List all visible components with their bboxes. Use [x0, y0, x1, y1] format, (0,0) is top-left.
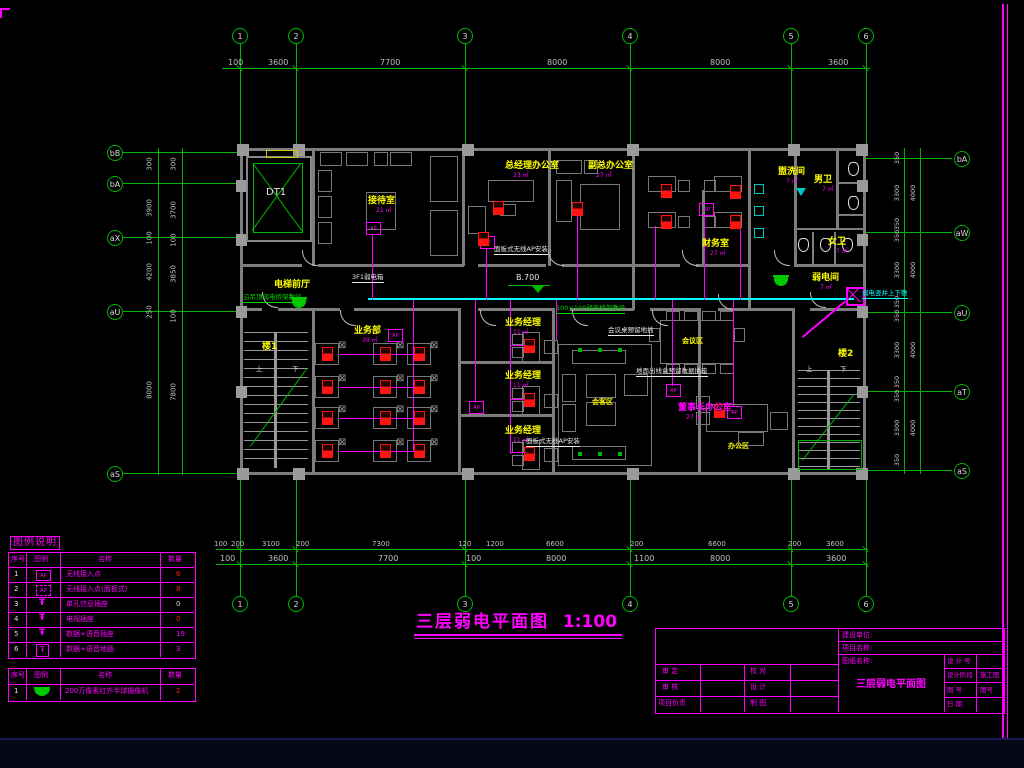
grid-bubble-left: bB [107, 145, 123, 161]
wire [740, 226, 741, 300]
titleblock-right-label: 设 计 号 [947, 658, 971, 665]
annotation: 地面出线盒预留数据插座 [636, 368, 708, 377]
grid-bubble-right: aT [954, 384, 970, 400]
door-arc [774, 250, 790, 266]
workstation-box: ⊠ [396, 341, 404, 351]
annotation: 上 [806, 366, 813, 373]
elevation-triangle-icon [532, 286, 544, 293]
dim-label: 1100 [634, 555, 654, 563]
dim-label: 7300 [372, 541, 390, 548]
workstation-box: ⊠ [396, 405, 404, 415]
data-outlet-icon [414, 411, 425, 425]
legend-ap-icon: AP [36, 585, 51, 596]
furniture [678, 216, 690, 228]
grid-line [866, 477, 867, 596]
grid-bubble-right: aW [954, 225, 970, 241]
wall [794, 148, 797, 266]
furniture [346, 152, 368, 166]
grid-bubble-top: 2 [288, 28, 304, 44]
plant-dot [578, 348, 582, 352]
titleblock-role-label: 审 定 [662, 668, 678, 675]
grid-line [791, 43, 792, 148]
data-outlet-icon [414, 347, 425, 361]
dim-label: 3300 [894, 185, 901, 202]
dim-label: 3600 [268, 555, 288, 563]
plant-dot [598, 348, 602, 352]
wireless-ap-icon: AP [388, 329, 403, 342]
data-outlet-icon [322, 444, 333, 458]
data-outlet-icon [380, 347, 391, 361]
cad-drawing-canvas[interactable]: 三层弱电平面图 1:100 图例说明 112233445566100360077… [0, 0, 1024, 768]
wire [486, 248, 487, 300]
furniture [468, 206, 486, 234]
stair-rail [798, 440, 862, 470]
column [857, 386, 868, 398]
legend2-header: 数量 [168, 672, 182, 679]
furniture [318, 170, 332, 192]
dim-label: 100 [466, 555, 481, 563]
data-outlet-icon [322, 380, 333, 394]
dim-label: 350 [894, 152, 901, 164]
wire [733, 300, 734, 406]
dim-line-bottom-1 [216, 549, 868, 550]
grid-line [866, 470, 952, 471]
legend-row-no: 1 [14, 571, 18, 578]
furniture [562, 374, 576, 402]
room-label: 总经理办公室 [505, 162, 559, 171]
dim-label: 7700 [380, 59, 400, 67]
elevation-label: B.700 [516, 274, 539, 282]
titleblock-field: 项目名称: [842, 645, 872, 652]
stair-stringer [274, 332, 277, 468]
dim-label: 250 [147, 305, 154, 318]
column [293, 468, 305, 480]
legend-header: 图例 [34, 556, 48, 563]
titleblock-right-value: 图号 [980, 687, 993, 694]
legend-floor-outlet-icon: Ŧ [36, 644, 49, 657]
dim-label: 3300 [894, 420, 901, 437]
room-area-label: 39 ㎡ [362, 338, 378, 344]
wall [794, 264, 866, 267]
legend-outlet-icon: Ŧ [39, 599, 45, 608]
grid-line [866, 391, 952, 392]
data-outlet-icon [524, 447, 535, 461]
wall [478, 264, 546, 267]
legend-table-line [8, 612, 194, 613]
workstation-box: ⊠ [338, 405, 346, 415]
furniture [572, 350, 626, 364]
titleblock-field: 建设单位: [842, 632, 872, 639]
grid-bubble-bottom: 4 [622, 596, 638, 612]
legend-table-line [60, 552, 61, 657]
furniture [430, 210, 458, 256]
legend2-row-qty: 2 [176, 688, 180, 695]
wall [240, 264, 302, 267]
legend-row-no: 6 [14, 646, 18, 653]
data-outlet-icon [380, 411, 391, 425]
dim-label: 3600 [828, 59, 848, 67]
legend-row-name: 无线接入点(面板式) [66, 586, 127, 593]
legend-row-name: 数据+语音插座 [66, 631, 114, 638]
wall [318, 264, 464, 267]
wireless-ap-icon: AP [469, 401, 484, 414]
legend-row-name: 数据+语音地插 [66, 646, 114, 653]
grid-bubble-right: aS [954, 463, 970, 479]
legend-table-2-line [60, 668, 61, 700]
grid-bubble-bottom: 6 [858, 596, 874, 612]
grid-bubble-left: aS [107, 466, 123, 482]
data-outlet-icon [572, 202, 583, 216]
wire [655, 226, 656, 300]
legend-table-line [8, 582, 194, 583]
column [857, 306, 868, 318]
grid-bubble-bottom: 3 [457, 596, 473, 612]
grid-bubble-bottom: 5 [783, 596, 799, 612]
stair-arrow [250, 368, 307, 446]
annotation: 下 [292, 366, 299, 373]
legend-title: 图例说明 [10, 536, 60, 550]
dim-label: 200 [296, 541, 309, 548]
door-arc [340, 310, 356, 326]
annotation: 100×100弱电桥架敷设 [556, 305, 625, 314]
furniture [624, 374, 648, 396]
grid-line [465, 477, 466, 596]
dim-line-top [222, 68, 870, 69]
wall [632, 264, 680, 267]
room-label: 女卫 [828, 238, 846, 247]
room-area-label: 21 ㎡ [376, 208, 392, 214]
data-outlet-icon [322, 347, 333, 361]
column [627, 144, 639, 156]
column [462, 468, 474, 480]
dim-label: 3300 [894, 342, 901, 359]
furniture [770, 412, 788, 430]
dim-label: 100 [147, 231, 154, 244]
data-outlet-icon [414, 444, 425, 458]
legend-row-qty: 3 [176, 646, 180, 653]
dim-label: 100 [171, 233, 178, 246]
plant-dot [598, 452, 602, 456]
annotation: 会议桌预留地插 [608, 327, 654, 336]
data-outlet-icon [661, 215, 672, 229]
chair [544, 340, 558, 354]
furniture [720, 364, 734, 374]
room-label: 财务室 [702, 240, 729, 249]
grid-bubble-top: 1 [232, 28, 248, 44]
chair [544, 448, 558, 462]
legend-row-no: 2 [14, 586, 18, 593]
titleblock-line [655, 680, 838, 681]
title-underline-2 [414, 638, 622, 639]
dim-label: 1200 [486, 541, 504, 548]
wall [748, 264, 751, 310]
dim-label: 100 [220, 555, 235, 563]
wireless-ap-icon: AP [699, 203, 714, 216]
dim-label: 350 [894, 454, 901, 466]
legend-row-name: 无线接入点 [66, 571, 101, 578]
legend-row-qty: 0 [176, 616, 180, 623]
furniture [318, 222, 332, 244]
wire [577, 212, 578, 300]
legend-header: 序号 [11, 556, 25, 563]
dim-label: 3300 [894, 262, 901, 279]
room-area-label: 7 ㎡ [822, 187, 834, 193]
door-arc [682, 250, 698, 266]
dim-label: 3600 [826, 555, 846, 563]
legend2-row-name: 200万像素红外半球摄像机 [65, 688, 148, 695]
column [236, 306, 247, 318]
workstation-box: ⊠ [396, 374, 404, 384]
room-area-label: 11 ㎡ [513, 330, 529, 336]
grid-line [630, 43, 631, 148]
titleblock-line [790, 664, 791, 712]
room-label: 会议区 [682, 338, 703, 345]
titleblock-field: 图纸名称: [842, 658, 872, 665]
annotation: 上 [256, 366, 263, 373]
furniture [390, 152, 412, 166]
dim-label: 6600 [708, 541, 726, 548]
wire [413, 300, 414, 452]
dim-label: 350 [894, 230, 901, 242]
titleblock-role-label: 校 对 [750, 668, 766, 675]
grid-bubble-top: 3 [457, 28, 473, 44]
titleblock-line [976, 654, 977, 712]
grid-line [866, 312, 952, 313]
legend-table-line [8, 567, 194, 568]
workstation-box: ⊠ [338, 374, 346, 384]
column [237, 468, 249, 480]
furniture [430, 156, 458, 202]
wall [836, 148, 839, 230]
titleblock-right-label: 日 期 [947, 701, 962, 708]
elevator-door [266, 150, 298, 158]
wall [836, 214, 864, 216]
workstation-box: ⊠ [430, 438, 438, 448]
wall [462, 148, 465, 266]
dim-label: 3900 [147, 199, 154, 217]
wall [792, 308, 795, 474]
titleblock-role-label: 审 核 [662, 684, 678, 691]
grid-line [791, 477, 792, 596]
dim-label: 350 [894, 218, 901, 230]
room-area-label: 7 ㎡ [820, 285, 832, 291]
plant-dot [578, 452, 582, 456]
grid-bubble-right: bA [954, 151, 970, 167]
elevator-label: DT1 [266, 188, 286, 198]
legend2-row-no: 1 [14, 688, 18, 695]
legend-outlet-icon: Ŧ [39, 629, 45, 638]
room-area-label: 27 ㎡ [596, 173, 612, 179]
titleblock-role-label: 项目负责 [658, 700, 686, 707]
titleblock-line [655, 664, 838, 665]
wall [278, 308, 340, 311]
room-label: 副总办公室 [588, 162, 633, 171]
grid-bubble-top: 5 [783, 28, 799, 44]
dim-label: 8000 [147, 381, 154, 399]
furniture [720, 311, 734, 321]
dim-line-left-a [158, 148, 159, 475]
grid-bubble-top: 6 [858, 28, 874, 44]
legend-row-qty: 6 [176, 571, 180, 578]
dim-label: 350 [894, 390, 901, 402]
door-arc [480, 310, 496, 326]
wire [340, 354, 418, 355]
room-label: 男卫 [814, 176, 832, 185]
data-outlet-icon [380, 380, 391, 394]
room-area-label: 23 ㎡ [513, 173, 529, 179]
dim-label: 7700 [378, 555, 398, 563]
titleblock-right-value: 施工图 [980, 672, 1000, 679]
wire [475, 300, 476, 402]
workstation-box: ⊠ [338, 438, 346, 448]
furniture [678, 180, 690, 192]
room-label: 楼2 [838, 350, 853, 359]
room-label: 办公区 [728, 443, 749, 450]
grid-line [296, 477, 297, 596]
room-label: 接待室 [368, 197, 395, 206]
legend-outlet-icon: Ŧ [39, 614, 45, 623]
legend-row-qty: 8 [176, 586, 180, 593]
dim-label: 3850 [171, 265, 178, 283]
wall [354, 308, 460, 311]
furniture [684, 311, 698, 321]
titleblock-role-label: 制 图 [750, 700, 766, 707]
data-outlet-icon [730, 215, 741, 229]
titleblock-line [655, 696, 838, 697]
wall [562, 264, 634, 267]
annotation: 沿吊顶弱电桥架敷设 [243, 294, 302, 303]
furniture [374, 152, 388, 166]
column [857, 234, 868, 246]
dim-label: 7800 [171, 383, 178, 401]
sheet-frame-right-2 [1007, 4, 1008, 740]
legend-ap-icon: AP [36, 570, 51, 581]
wall [812, 232, 814, 264]
dim-label: 350 [894, 376, 901, 388]
wire [340, 387, 418, 388]
dim-label: 3100 [262, 541, 280, 548]
dim-label: 4000 [910, 342, 917, 359]
wire [372, 234, 373, 300]
furniture [488, 180, 534, 202]
room-label: 弱电间 [812, 274, 839, 283]
grid-bubble-left: aX [107, 230, 123, 246]
dim-label: 4200 [147, 263, 154, 281]
grid-line [630, 477, 631, 596]
grid-line [296, 43, 297, 148]
urinal-fixture [796, 188, 806, 196]
drawing-title: 三层弱电平面图 1:100 [416, 614, 617, 631]
wireless-ap-icon: AP [366, 222, 381, 235]
dim-label: 3700 [171, 201, 178, 219]
cable-tray-trunk [368, 298, 854, 300]
room-label: 业务部 [354, 327, 381, 336]
drawing-scale: 1:100 [563, 612, 617, 632]
column [236, 386, 247, 398]
wire [340, 451, 418, 452]
sheet-frame-right [1002, 4, 1004, 740]
title-underline [414, 634, 622, 636]
plant-dot [618, 452, 622, 456]
titleblock-line [944, 697, 1003, 698]
furniture [318, 196, 332, 218]
legend-row-qty: 0 [176, 601, 180, 608]
room-label: 业务经理 [505, 372, 541, 381]
dim-label: 200 [630, 541, 643, 548]
camera-icon [773, 275, 789, 277]
legend-header: 名称 [98, 556, 112, 563]
dim-label: 200 [788, 541, 801, 548]
annotation: 面板式无线AP安装 [526, 438, 580, 447]
legend-table-2-line [26, 668, 27, 700]
titleblock-line [744, 664, 745, 712]
room-area-label: 27 ㎡ [710, 251, 726, 257]
column [462, 144, 474, 156]
wall [458, 308, 461, 474]
grid-bubble-bottom: 2 [288, 596, 304, 612]
furniture [320, 152, 342, 166]
dim-label: 3600 [826, 541, 844, 548]
titleblock-line [838, 641, 1003, 642]
legend-table-line [8, 597, 194, 598]
room-area-label: 7 ㎡ [786, 179, 798, 185]
wire [340, 418, 418, 419]
wall [240, 148, 866, 151]
data-outlet-icon [661, 184, 672, 198]
data-outlet-icon [493, 201, 504, 215]
legend-table-2-line [8, 684, 194, 685]
plant-dot [618, 348, 622, 352]
wall [794, 228, 864, 230]
titleblock-role-label: 设 计 [750, 684, 766, 691]
furniture [734, 328, 745, 342]
chair [544, 394, 558, 408]
toilet-fixture [848, 196, 859, 210]
wall [632, 148, 635, 310]
furniture [704, 216, 716, 228]
data-outlet-icon [414, 380, 425, 394]
titleblock-right-label: 设计阶段 [947, 672, 973, 679]
legend-row-no: 5 [14, 631, 18, 638]
grid-bubble-top: 4 [622, 28, 638, 44]
legend-table-line [8, 642, 194, 643]
furniture [580, 184, 620, 230]
annotation: 3F1弱电箱 [352, 274, 384, 283]
dim-label: 3600 [268, 59, 288, 67]
sink-fixture [754, 184, 764, 194]
dim-label: 120 [458, 541, 471, 548]
legend-row-no: 3 [14, 601, 18, 608]
dim-label: 8000 [710, 59, 730, 67]
grid-bubble-left: aU [107, 304, 123, 320]
dim-label: 6600 [546, 541, 564, 548]
legend2-header: 名称 [98, 672, 112, 679]
titleblock-line [700, 664, 701, 712]
grid-line [465, 43, 466, 148]
titleblock-right-label: 图 号 [947, 687, 962, 694]
grid-line [866, 43, 867, 148]
app-bottom-bar [0, 740, 1024, 768]
furniture [556, 180, 572, 222]
grid-line [866, 232, 952, 233]
legend-row-name: 单孔信息插座 [66, 601, 108, 608]
data-outlet-icon [380, 444, 391, 458]
furniture [586, 374, 616, 398]
grid-bubble-right: aU [954, 305, 970, 321]
column [627, 468, 639, 480]
room-label: 电梯前厅 [274, 281, 310, 290]
legend-table-line [8, 627, 194, 628]
